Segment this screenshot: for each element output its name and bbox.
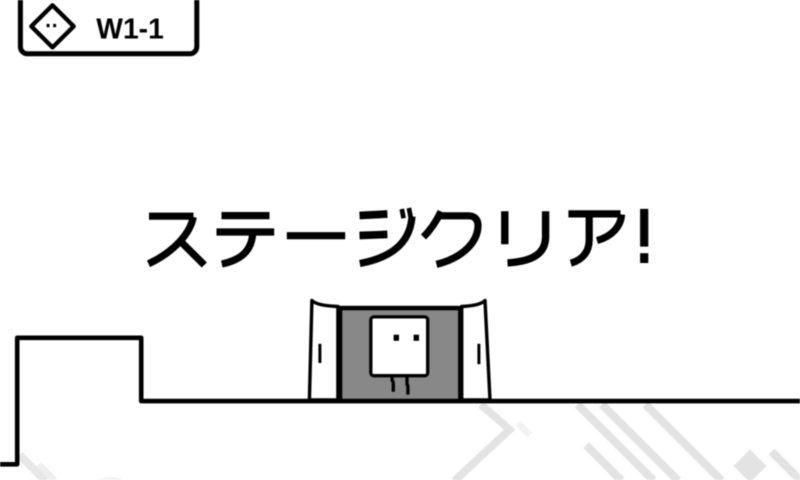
svg-text:W1-1: W1-1 xyxy=(96,14,164,46)
